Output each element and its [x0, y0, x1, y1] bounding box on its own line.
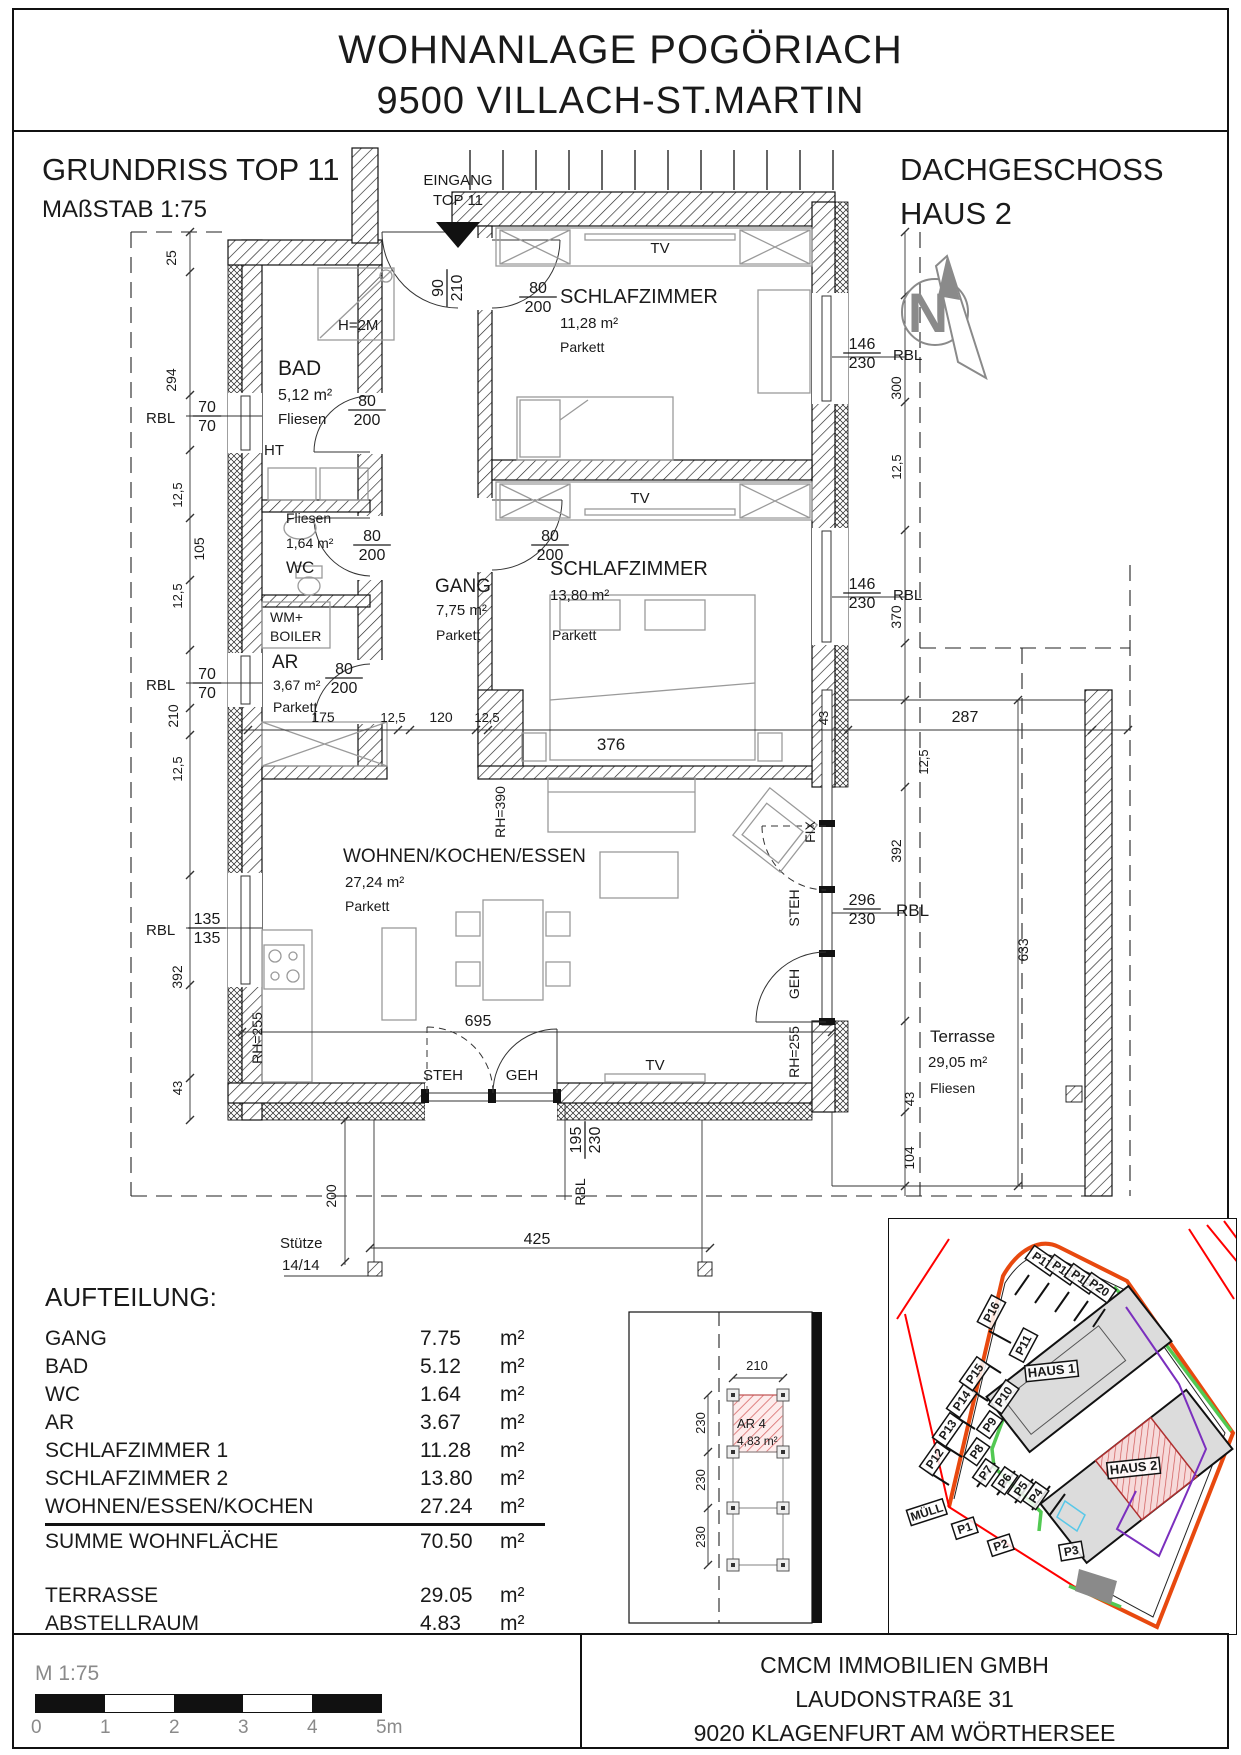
note: HT [264, 442, 284, 459]
area-table-row: GANG 7.75 m² [45, 1323, 545, 1351]
furniture [262, 228, 817, 1082]
room-area-value: 70.50 [420, 1530, 500, 1554]
fraction-text: 230 [849, 595, 876, 612]
area-table-row: SCHLAFZIMMER 1 11.28 m² [45, 1435, 545, 1463]
tv-label: TV [630, 490, 649, 507]
dim: 175 [311, 709, 335, 725]
room-floor: Parkett [552, 627, 596, 643]
dim: 287 [952, 709, 979, 726]
room-name: AR 4 [737, 1416, 766, 1431]
north-letter: N [908, 281, 948, 344]
room-floor: Parkett [560, 339, 604, 355]
room-area-value: 27.24 [420, 1495, 500, 1519]
dim: 200 [323, 1184, 339, 1208]
door-size-label: 296230 [843, 892, 881, 928]
room-area-value: 11.28 [420, 1439, 500, 1463]
room-area: 3,67 m² [273, 677, 321, 693]
fraction-text: 230 [849, 355, 876, 372]
area-unit: m² [500, 1355, 545, 1379]
scale-bar-cell [243, 1695, 312, 1712]
window-glass [241, 876, 250, 984]
rbl-label: RBL [896, 901, 929, 920]
dim: 12,5 [916, 749, 931, 774]
rbl-label: RBL [146, 922, 175, 939]
room-name: BAD [278, 357, 321, 380]
parking-label: P13 [933, 1413, 963, 1447]
scale-label: M 1:75 [35, 1662, 99, 1685]
parking-label: P11 [1009, 1328, 1037, 1362]
dim: 695 [465, 1013, 492, 1030]
fraction-text: 200 [525, 299, 552, 316]
dim: 633 [1015, 938, 1031, 962]
door-size-label: 135135 [188, 911, 226, 947]
fraction-text: 146 [849, 336, 876, 353]
room-name: SCHLAFZIMMER [550, 558, 708, 580]
dim: 294 [163, 368, 179, 392]
dim: 12,5 [889, 454, 904, 479]
room-area-value: 1.64 [420, 1383, 500, 1407]
scale-bar-cell [36, 1695, 105, 1712]
door-size-label: 7070 [193, 666, 221, 702]
fraction-text: 195 [568, 1127, 585, 1154]
dim: 210 [746, 1358, 768, 1373]
area-table-row: SUMME WOHNFLÄCHE 70.50 m² [45, 1526, 545, 1554]
window-glass [822, 531, 831, 642]
area-table-row: WOHNEN/ESSEN/KOCHEN 27.24 m² [45, 1491, 545, 1519]
dim: 230 [693, 1526, 708, 1548]
tv-label: TV [645, 1057, 664, 1074]
dim: 43 [170, 1081, 185, 1095]
note: H=2M [338, 317, 378, 334]
room-area: 11,28 m² [560, 315, 618, 332]
area-table-title: AUFTEILUNG: [45, 1282, 545, 1313]
dim: 425 [524, 1231, 551, 1248]
fraction-text: 135 [194, 911, 221, 928]
rbl-label: RBL [893, 347, 922, 364]
room-area-value: 7.75 [420, 1327, 500, 1351]
dim: 12,5 [474, 710, 499, 725]
area-table-row: AR 3.67 m² [45, 1407, 545, 1435]
waste-label: MÜLL [906, 1499, 947, 1526]
room-name: AR 4 [737, 1416, 766, 1431]
door-size-label: 90210 [430, 269, 466, 307]
room-name: Terrasse [930, 1027, 995, 1046]
dim: 120 [429, 709, 453, 725]
tv-label: TV [650, 240, 669, 257]
window-note: FIX [802, 820, 818, 842]
room-name: GANG [435, 576, 491, 597]
door-label: STEH [786, 889, 802, 926]
dim: 12,5 [170, 482, 185, 507]
room-floor: Parkett [345, 898, 389, 914]
room-label: SCHLAFZIMMER 1 [45, 1439, 420, 1463]
area-unit: m² [500, 1411, 545, 1435]
room-area: 11,28 m² [560, 315, 618, 332]
note: 14/14 [282, 1257, 320, 1274]
entrance-label: EINGANG [423, 172, 492, 189]
area-table-row: WC 1.64 m² [45, 1379, 545, 1407]
door-size-label: 146230 [843, 576, 881, 612]
north-letter: N [908, 281, 948, 344]
fraction-text: 90 [430, 279, 447, 297]
room-label: WC [45, 1383, 420, 1407]
room-area: 13,80 m² [550, 587, 609, 604]
rbl-label: RBL [146, 677, 175, 694]
room-area-value: 5.12 [420, 1355, 500, 1379]
parking-label: P2 [987, 1534, 1014, 1556]
fraction-text: 296 [849, 892, 876, 909]
room-name: BAD [278, 357, 321, 380]
dim: 12,5 [474, 710, 499, 725]
company-street: LAUDONSTRAßE 31 [582, 1682, 1227, 1716]
company-name: CMCM IMMOBILIEN GMBH [582, 1648, 1227, 1682]
fraction-text: 200 [537, 547, 564, 564]
dim: 370 [888, 605, 904, 629]
entrance-label: TOP 11 [433, 192, 483, 209]
fraction-text: 200 [354, 412, 381, 429]
scale-bar-cell [105, 1695, 174, 1712]
room-area-value: 13.80 [420, 1467, 500, 1491]
dim: 105 [191, 537, 207, 561]
dim: 200 [323, 1184, 339, 1208]
tv-label: TV [630, 490, 649, 507]
room-label: GANG [45, 1327, 420, 1351]
door-label: STEH [786, 889, 802, 926]
room-area: 27,24 m² [345, 874, 404, 891]
dim: 230 [693, 1412, 708, 1434]
room-floor: Parkett [436, 627, 480, 643]
divider [12, 1633, 1229, 1635]
room-name: GANG [435, 576, 491, 597]
note: HT [264, 442, 284, 459]
room-name: WC [286, 558, 314, 577]
note: Stütze [280, 1235, 323, 1252]
door-label: GEH [506, 1067, 539, 1084]
room-floor: Fliesen [930, 1080, 975, 1096]
room-floor: Parkett [552, 627, 596, 643]
dim: 43 [902, 1092, 917, 1106]
room-area: 1,64 m² [286, 535, 334, 551]
area-table: AUFTEILUNG: GANG 7.75 m²BAD 5.12 m²WC 1.… [45, 1282, 545, 1636]
area-table-row: SCHLAFZIMMER 2 13.80 m² [45, 1463, 545, 1491]
door-size-label: 80200 [531, 528, 569, 564]
dim: 43 [816, 711, 831, 725]
room-area: 4,83 m² [737, 1434, 778, 1448]
room-name: AR [272, 652, 298, 673]
note: BOILER [270, 628, 321, 644]
scale-tick-label: 5m [376, 1717, 402, 1739]
dim: 230 [693, 1469, 708, 1491]
dim: 43 [816, 711, 831, 725]
room-area: 3,67 m² [273, 677, 321, 693]
room-label: TERRASSE [45, 1584, 420, 1608]
room-floor: Fliesen [278, 411, 326, 428]
area-unit: m² [500, 1584, 545, 1608]
dim: 104 [901, 1146, 917, 1170]
rbl-label: RBL [146, 677, 175, 694]
fraction-text: 200 [331, 680, 358, 697]
dim: 392 [888, 839, 904, 863]
fraction-text: 230 [587, 1127, 604, 1154]
door-size-label: 146230 [843, 336, 881, 372]
tv-label: TV [645, 1057, 664, 1074]
height-note: RH=390 [492, 786, 508, 838]
area-unit: m² [500, 1467, 545, 1491]
dim: 12,5 [380, 710, 405, 725]
room-name: SCHLAFZIMMER [560, 286, 718, 308]
fraction-text: 80 [541, 528, 559, 545]
room-area: 5,12 m² [278, 387, 333, 404]
window-note: FIX [802, 820, 818, 842]
dim: 376 [597, 735, 625, 754]
room-label: SCHLAFZIMMER 2 [45, 1467, 420, 1491]
note: WM+ [270, 609, 303, 625]
height-note: RH=255 [786, 1026, 802, 1078]
area-unit: m² [500, 1327, 545, 1351]
dim: 105 [191, 537, 207, 561]
fraction-text: 80 [358, 393, 376, 410]
parking-label: P16 [977, 1295, 1005, 1329]
rbl-label: RBL [146, 922, 175, 939]
scale-tick-label: 2 [169, 1717, 180, 1739]
room-name: WOHNEN/KOCHEN/ESSEN [343, 846, 586, 867]
site-plan: HAUS 1HAUS 2P12P13P14P15P16P17P18P19P20P… [888, 1218, 1237, 1635]
fraction-text: 80 [529, 280, 547, 297]
room-floor: Fliesen [286, 510, 331, 526]
parking-label: P20 [1082, 1273, 1116, 1303]
fraction-text: 230 [849, 911, 876, 928]
tv-label: TV [650, 240, 669, 257]
area-unit: m² [500, 1383, 545, 1407]
entrance-label: TOP 11 [433, 192, 483, 209]
dim: 175 [311, 709, 335, 725]
fraction-text: 200 [359, 547, 386, 564]
dim: 12,5 [916, 749, 931, 774]
height-note: RH=255 [249, 1012, 265, 1064]
rbl-label: RBL [893, 587, 922, 604]
area-unit: m² [500, 1495, 545, 1519]
dim: 425 [524, 1231, 551, 1248]
fraction-text: 80 [363, 528, 381, 545]
height-note: RH=255 [249, 1012, 265, 1064]
fraction-text: 70 [198, 418, 216, 435]
dim: 12,5 [170, 756, 185, 781]
rbl-label: RBL [146, 410, 175, 427]
area-table-row: TERRASSE 29.05 m² [45, 1580, 545, 1608]
room-floor: Fliesen [930, 1080, 975, 1096]
fraction-text: 146 [849, 576, 876, 593]
dim: 230 [693, 1469, 708, 1491]
note: H=2M [338, 317, 378, 334]
window-glass [822, 296, 831, 401]
height-note: RH=255 [786, 1026, 802, 1078]
room-area: 7,75 m² [436, 602, 487, 619]
dim: 12,5 [170, 583, 185, 608]
scale-bar-cell [174, 1695, 243, 1712]
dim: 230 [693, 1412, 708, 1434]
dim: 12,5 [380, 710, 405, 725]
room-floor: Parkett [560, 339, 604, 355]
height-note: RH=390 [492, 786, 508, 838]
dim: 392 [169, 965, 185, 989]
storage-plan [629, 1312, 822, 1623]
room-floor: Fliesen [286, 510, 331, 526]
note: BOILER [270, 628, 321, 644]
note: WM+ [270, 609, 303, 625]
door-label: GEH [786, 969, 802, 999]
dim: 376 [597, 735, 625, 754]
dim: 210 [746, 1358, 768, 1373]
room-area: 5,12 m² [278, 387, 333, 404]
parking-label: P3 [1059, 1541, 1084, 1561]
site-plan-map: HAUS 1HAUS 2P12P13P14P15P16P17P18P19P20P… [889, 1219, 1236, 1634]
entrance-arrow-icon [436, 222, 480, 248]
rbl-label: RBL [572, 1178, 588, 1205]
room-area: 29,05 m² [928, 1054, 987, 1071]
dim: 210 [165, 704, 181, 728]
scale-bar-cells [35, 1694, 382, 1713]
door-size-label: 80200 [519, 280, 557, 316]
door-label: STEH [423, 1067, 463, 1084]
dim: 230 [693, 1526, 708, 1548]
note: Stütze [280, 1235, 323, 1252]
room-area: 7,75 m² [436, 602, 487, 619]
room-floor: Fliesen [278, 411, 326, 428]
fraction-text: 210 [449, 275, 466, 302]
parking-label: P3 [1063, 1543, 1080, 1559]
area-unit: m² [500, 1439, 545, 1463]
rbl-label: RBL [572, 1178, 588, 1205]
room-area-value: 29.05 [420, 1584, 500, 1608]
rbl-label: RBL [893, 347, 922, 364]
room-name: WOHNEN/KOCHEN/ESSEN [343, 846, 586, 867]
dim: 12,5 [170, 756, 185, 781]
room-name: Terrasse [930, 1027, 995, 1046]
dim: 633 [1015, 938, 1031, 962]
area-table-rows: GANG 7.75 m²BAD 5.12 m²WC 1.64 m²AR 3.67… [45, 1323, 545, 1636]
dim: 300 [888, 376, 904, 400]
scale-tick-label: 4 [307, 1717, 318, 1739]
dim: 287 [952, 709, 979, 726]
room-floor: Parkett [345, 898, 389, 914]
scale-tick-label: 3 [238, 1717, 249, 1739]
fraction-text: 70 [198, 399, 216, 416]
blueprint-page: WOHNANLAGE POGÖRIACH 9500 VILLACH-ST.MAR… [0, 0, 1241, 1755]
company-block: CMCM IMMOBILIEN GMBH LAUDONSTRAßE 31 902… [582, 1648, 1227, 1750]
dim: 12,5 [170, 482, 185, 507]
window-glass [241, 396, 250, 450]
note: 14/14 [282, 1257, 320, 1274]
rbl-label: RBL [893, 587, 922, 604]
dim: 392 [888, 839, 904, 863]
dim: 120 [429, 709, 453, 725]
door-size-label: 195230 [568, 1121, 604, 1159]
rbl-label: RBL [896, 901, 929, 920]
room-label: BAD [45, 1355, 420, 1379]
fraction-text: 80 [335, 661, 353, 678]
scale-bar: M 1:75 012345m [35, 1662, 395, 1741]
parking-label: P1 [951, 1517, 978, 1539]
dim: 12,5 [889, 454, 904, 479]
dim: 300 [888, 376, 904, 400]
room-name: SCHLAFZIMMER [560, 286, 718, 308]
dim: 294 [163, 368, 179, 392]
dim: 695 [465, 1013, 492, 1030]
glass-front [822, 690, 832, 1025]
area-unit: m² [500, 1530, 545, 1554]
entrance-label: EINGANG [423, 172, 492, 189]
scale-tick-label: 1 [100, 1717, 111, 1739]
parking-label: P15 [960, 1357, 990, 1391]
spacer [45, 1554, 545, 1580]
company-city: 9020 KLAGENFURT AM WÖRTHERSEE [582, 1716, 1227, 1750]
dim: 392 [169, 965, 185, 989]
room-name: WC [286, 558, 314, 577]
fraction-text: 135 [194, 930, 221, 947]
area-table-row: BAD 5.12 m² [45, 1351, 545, 1379]
scale-tick-label: 0 [31, 1717, 42, 1739]
door-label: GEH [786, 969, 802, 999]
scale-bar-cell [312, 1695, 381, 1712]
room-label: WOHNEN/ESSEN/KOCHEN [45, 1495, 420, 1519]
dim: 104 [901, 1146, 917, 1170]
dim: 25 [163, 250, 179, 266]
door-size-label: 7070 [193, 399, 221, 435]
room-label: AR [45, 1411, 420, 1435]
room-floor: Parkett [436, 627, 480, 643]
window-glass [241, 656, 250, 704]
room-name: SCHLAFZIMMER [550, 558, 708, 580]
dim: 25 [163, 250, 179, 266]
room-name: AR [272, 652, 298, 673]
scale-bar-ticks: 012345m [35, 1717, 395, 1741]
room-area: 27,24 m² [345, 874, 404, 891]
dim: 210 [165, 704, 181, 728]
room-area: 29,05 m² [928, 1054, 987, 1071]
fraction-text: 70 [198, 666, 216, 683]
room-area: 1,64 m² [286, 535, 334, 551]
room-label: SUMME WOHNFLÄCHE [45, 1530, 420, 1554]
room-area-value: 3.67 [420, 1411, 500, 1435]
door-label: STEH [423, 1067, 463, 1084]
rbl-label: RBL [146, 410, 175, 427]
room-area: 13,80 m² [550, 587, 609, 604]
door-label: GEH [506, 1067, 539, 1084]
dim: 12,5 [170, 583, 185, 608]
door-openings [356, 238, 557, 1120]
dim: 43 [902, 1092, 917, 1106]
dim: 43 [170, 1081, 185, 1095]
area-table-row: ABSTELLRAUM 4.83 m² [45, 1608, 545, 1636]
eave-ticks [470, 150, 833, 190]
dim: 370 [888, 605, 904, 629]
room-area: 4,83 m² [737, 1434, 778, 1448]
fraction-text: 70 [198, 685, 216, 702]
